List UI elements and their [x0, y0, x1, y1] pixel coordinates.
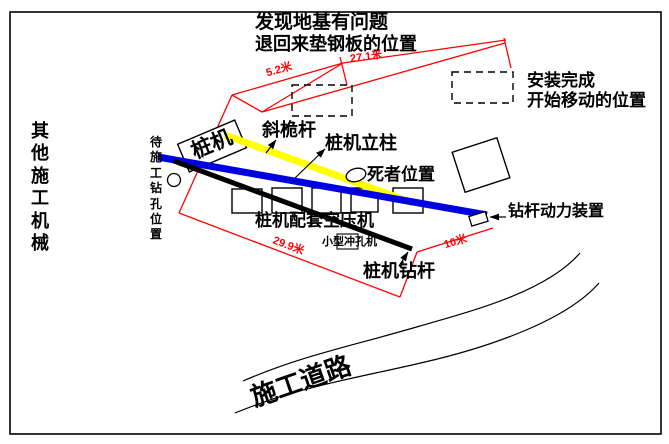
dimension-tick-middle	[340, 57, 347, 85]
label-drill-rod: 桩机钻杆	[363, 261, 435, 282]
dashed-position-rect-right	[452, 72, 513, 103]
label-inclined-mast: 斜桅杆	[262, 120, 316, 141]
label-pending-borehole: 待施工钻孔位置	[150, 135, 163, 243]
pending-borehole-circle	[168, 174, 181, 187]
note-install-complete-line2: 开始移动的位置	[527, 91, 646, 111]
accident-site-diagram: 发现地基有问题 退回来垫钢板的位置 安装完成 开始移动的位置 其他施工机械 待施…	[0, 0, 669, 444]
label-small-punching-machine: 小型冲孔机	[322, 236, 377, 249]
label-air-compressor: 桩机配套空压机	[255, 211, 374, 231]
travel-area-left-corner	[232, 95, 262, 112]
label-victim-position: 死者位置	[367, 165, 435, 185]
note-foundation-issue-line1: 发现地基有问题	[255, 12, 388, 34]
note-install-complete-line1: 安装完成	[527, 71, 595, 91]
note-foundation-issue-line2: 退回来垫钢板的位置	[255, 34, 417, 55]
label-other-machinery: 其他施工机械	[31, 120, 50, 254]
label-drill-power-unit: 钻杆动力装置	[508, 203, 604, 221]
label-column: 桩机立柱	[325, 133, 397, 154]
rotated-square	[452, 138, 510, 192]
dimension-tick-right	[504, 38, 511, 68]
